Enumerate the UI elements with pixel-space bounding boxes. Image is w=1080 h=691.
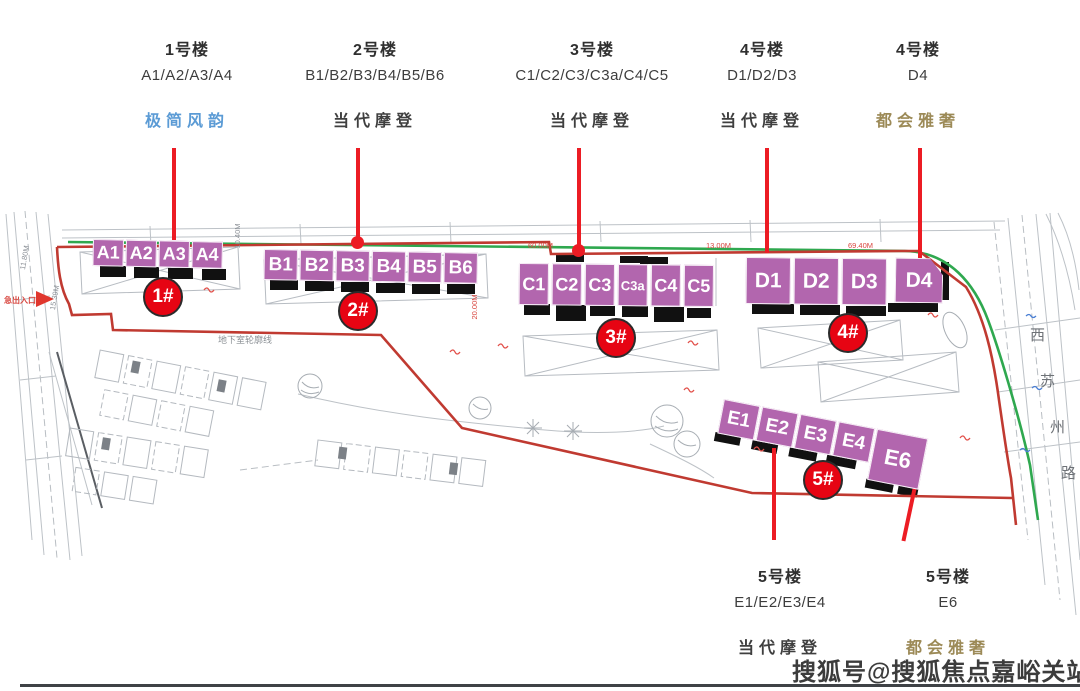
watermark: 搜狐号@搜狐焦点嘉峪关站 bbox=[792, 652, 1080, 687]
unit-block-c1: C1 bbox=[519, 263, 549, 305]
underground-outline-label: 地下室轮廓线 bbox=[218, 334, 272, 345]
unit-block-b3: B3 bbox=[335, 250, 370, 282]
building-style: 当代摩登 bbox=[265, 107, 485, 131]
unit-block-a4: A4 bbox=[191, 241, 223, 269]
bottom-rule bbox=[20, 684, 1080, 687]
dim-label-top1: 60.00M bbox=[528, 241, 553, 250]
dim-label-top3: 69.40M bbox=[848, 241, 873, 250]
building-units: B1/B2/B3/B4/B5/B6 bbox=[265, 67, 485, 84]
badge-1: 1# bbox=[143, 277, 183, 317]
building-name: 4号楼 bbox=[808, 36, 1028, 60]
building-label-group-5: 4号楼 D4 都会雅奢 bbox=[808, 36, 1028, 131]
dim-label-mid1: 10.40M bbox=[233, 223, 242, 248]
building-name: 2号楼 bbox=[265, 36, 485, 60]
unit-block-c4: C4 bbox=[651, 264, 681, 306]
dim-label-v2: 20.00M bbox=[470, 294, 479, 319]
building-units: E6 bbox=[838, 594, 1058, 611]
unit-block-b6: B6 bbox=[443, 252, 478, 284]
building-label-group-1: 1号楼 A1/A2/A3/A4 极简风韵 bbox=[77, 36, 297, 131]
building-style: 极简风韵 bbox=[77, 107, 297, 131]
unit-block-d1: D1 bbox=[746, 257, 791, 304]
building-label-group-5b: 5号楼 E6 都会雅奢 bbox=[838, 563, 1058, 658]
leader-dot bbox=[351, 236, 364, 249]
unit-block-e3: E3 bbox=[794, 414, 837, 455]
building-row-b: B1 B2 B3 B4 B5 B6 bbox=[263, 249, 480, 284]
building-style: 都会雅奢 bbox=[808, 107, 1028, 131]
unit-block-d3: D3 bbox=[842, 258, 887, 305]
unit-block-a3: A3 bbox=[158, 240, 190, 268]
building-units: A1/A2/A3/A4 bbox=[77, 67, 297, 84]
unit-block-c3a: C3a bbox=[618, 264, 648, 306]
road-name-char: 西 bbox=[1030, 327, 1045, 344]
unit-block-b5: B5 bbox=[407, 252, 442, 284]
building-label-group-2: 2号楼 B1/B2/B3/B4/B5/B6 当代摩登 bbox=[265, 36, 485, 131]
unit-block-e2: E2 bbox=[756, 406, 799, 447]
leader-line-5 bbox=[918, 148, 922, 258]
leader-line-1 bbox=[172, 148, 176, 240]
building-units: D4 bbox=[808, 67, 1028, 84]
badge-3: 3# bbox=[596, 318, 636, 358]
leader-line-2 bbox=[356, 148, 360, 245]
badge-2: 2# bbox=[338, 291, 378, 331]
building-name: 5号楼 bbox=[838, 563, 1058, 587]
unit-block-e6: E6 bbox=[867, 429, 928, 490]
road-name-char: 苏 bbox=[1040, 373, 1055, 390]
dim-label-top2: 13.00M bbox=[706, 241, 731, 250]
entrance-label: 急出入口 bbox=[4, 295, 36, 305]
site-plan-infographic: 急出入口 地下室轮廓线 60.00M 13.00M 69.40M 13.00M … bbox=[0, 0, 1080, 691]
unit-block-a2: A2 bbox=[125, 240, 157, 268]
unit-block-d2: D2 bbox=[794, 258, 839, 305]
dim-label-left2: 15.39M bbox=[48, 284, 61, 310]
unit-block-b4: B4 bbox=[371, 251, 406, 283]
road-name-char: 州 bbox=[1050, 419, 1065, 436]
unit-block-e1: E1 bbox=[717, 399, 760, 440]
badge-5: 5# bbox=[803, 460, 843, 500]
building-name: 1号楼 bbox=[77, 36, 297, 60]
building-row-a: A1 A2 A3 A4 bbox=[92, 239, 225, 269]
neighborhood-houses bbox=[88, 350, 266, 445]
building-row-d: D1 D2 D3 bbox=[746, 257, 890, 306]
unit-block-e4: E4 bbox=[832, 421, 875, 462]
unit-block-c3: C3 bbox=[585, 264, 615, 306]
bg-line bbox=[62, 221, 1005, 230]
leader-dot bbox=[572, 244, 585, 257]
unit-block-b1: B1 bbox=[263, 249, 298, 281]
badge-4: 4# bbox=[828, 313, 868, 353]
unit-block-c2: C2 bbox=[552, 263, 582, 305]
building-row-c: C1 C2 C3 C3a C4 C5 bbox=[519, 263, 717, 307]
road-name-char: 路 bbox=[1061, 465, 1076, 482]
leader-line-4 bbox=[765, 148, 769, 253]
unit-block-c5: C5 bbox=[684, 265, 714, 307]
unit-block-a1: A1 bbox=[92, 239, 124, 267]
leader-line-3 bbox=[577, 148, 581, 252]
unit-block-b2: B2 bbox=[299, 250, 334, 282]
